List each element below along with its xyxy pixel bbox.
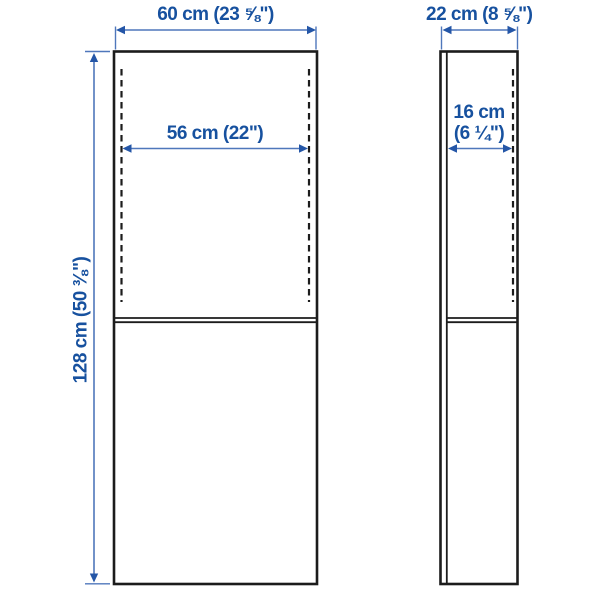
inner-depth-dimension-line bbox=[448, 144, 512, 152]
height-label: 128 cm (50 ⅜") bbox=[71, 257, 92, 384]
side-depth-dimension-line bbox=[442, 26, 518, 50]
front-width-label: 60 cm (23 ⅝") bbox=[114, 4, 317, 25]
inner-depth-label: 16 cm (6 ¼") bbox=[440, 102, 518, 144]
front-width-dimension-line bbox=[116, 26, 317, 50]
inner-depth-label-line1: 16 cm bbox=[440, 102, 518, 123]
side-depth-label: 22 cm (8 ⅝") bbox=[426, 4, 532, 25]
inner-width-dimension-line bbox=[123, 144, 309, 152]
inner-width-label: 56 cm (22") bbox=[121, 123, 309, 144]
dimension-diagram: 60 cm (23 ⅝") 22 cm (8 ⅝") 56 cm (22") 1… bbox=[0, 0, 600, 600]
inner-depth-label-line2: (6 ¼") bbox=[440, 123, 518, 144]
